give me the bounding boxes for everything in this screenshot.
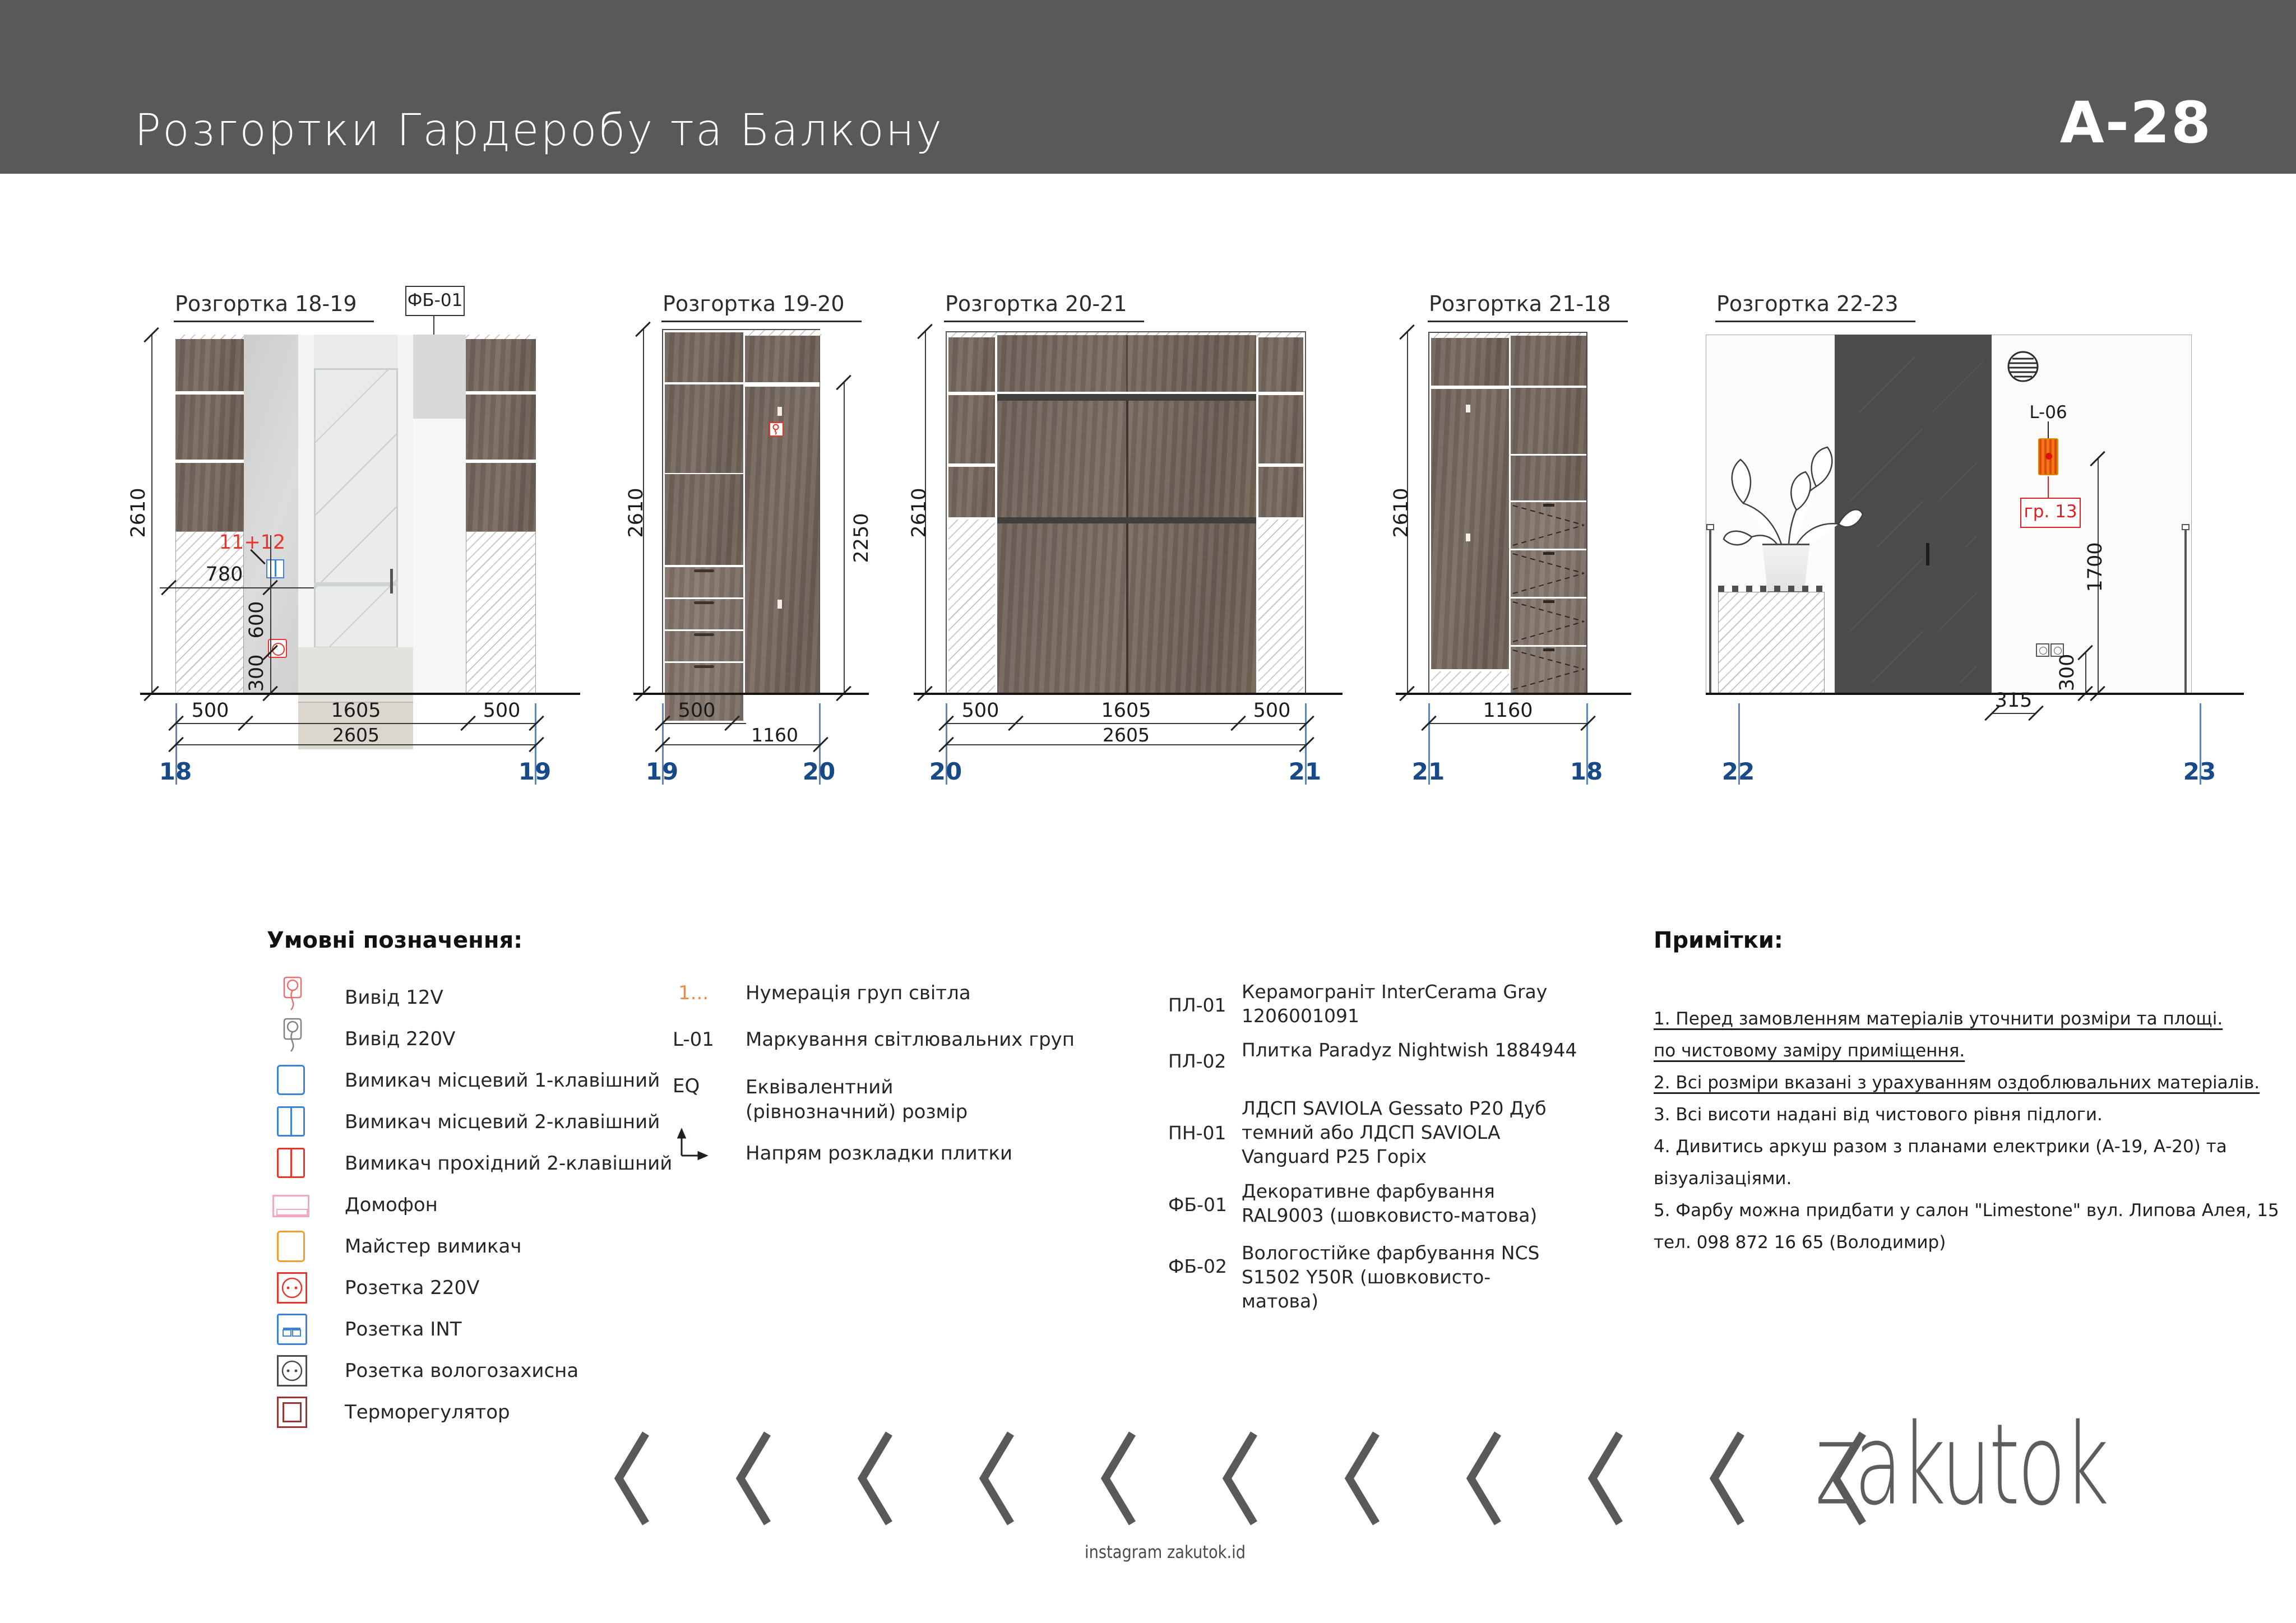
material-desc: Плитка Paradyz Nightwish 1884944 [1242,1038,1589,1062]
mirror-door [298,335,413,694]
wood-cabinet-door [1431,338,1509,386]
master-switch-icon [277,1231,305,1262]
lamp-leader [2048,421,2049,438]
wood-shelf-panel [175,463,244,531]
elevation-label: Розгортка 18-19 [174,291,374,322]
drawer-front [665,599,743,629]
wood-top-cabinet [997,335,1256,392]
wood-top-cabinet [1258,337,1303,392]
note-line: по чистовому заміру приміщення. [1654,1041,1965,1061]
drawer-front-x [1511,647,1586,693]
dim-total: 2605 [314,724,398,746]
wood-cabinet-door [745,336,820,382]
drawer-front-x [1511,599,1586,645]
material-code: ФБ-01 [1168,1193,1227,1217]
code-label: Нумерація груп світла [746,982,971,1004]
instagram-handle: instagram zakutok.id [1085,1542,1246,1562]
axis-marker: 18 [1564,758,1609,785]
elevation-label: Розгортка 20-21 [944,291,1144,322]
socket-int-icon [277,1314,307,1345]
material-code: ФБ-02 [1168,1254,1227,1278]
material-code: ПН-01 [1168,1121,1226,1145]
dim-total: 2605 [1084,724,1168,746]
light-group-tag: гр. 13 [2020,498,2081,528]
door-handle [390,569,393,593]
axis-marker: 19 [640,758,684,785]
drawer-x-icon [1511,502,1586,549]
drawer-front [665,663,743,693]
output-220v-icon [275,1018,311,1055]
wood-door-panel [665,474,743,565]
output-12v-icon [275,976,311,1013]
code-label: Напрям розкладки плитки [746,1142,1012,1165]
wood-shelf-panel [466,463,536,531]
planter-slats [1718,586,1825,592]
drawer-front [665,567,743,597]
chevron-icon [605,1430,659,1527]
note-line: 3. Всі висоти надані від чистового рівня… [1654,1105,2103,1125]
elevation-18-19: Розгортка 18-19 ФБ-01 2610 [129,280,583,801]
elevation-21-18: Розгортка 21-18 [1373,280,1637,801]
sliding-doors-upper [997,401,1256,517]
lamp-dot [2045,453,2052,460]
drawer-front-x [1511,550,1586,597]
dim-height: 2610 [625,474,647,552]
thermostat-inner [283,1402,302,1422]
intercom-slot [276,1209,308,1216]
note-line: 5. Фарбу можна придбати у салон "Limesto… [1654,1200,2279,1221]
drawer-handle [694,665,714,668]
dim-500: 500 [1244,699,1300,722]
wood-shelf-panel [175,339,244,391]
header-bar: Розгортки Гардеробу та Балкону A-28 [0,0,2296,174]
wood-top-cabinet [948,337,995,392]
drawing-sheet: Розгортки Гардеробу та Балкону A-28 Розг… [0,0,2296,1623]
slider-mid-rail [997,517,1256,523]
note-line: 4. Дивитись аркуш разом з планами електр… [1654,1137,2227,1157]
legend-item-label: Розетка вологозахисна [345,1360,578,1382]
intercom-icon [272,1195,309,1217]
thermostat-icon [277,1397,307,1428]
wood-section [1511,388,1586,454]
chevron-icon [849,1430,902,1527]
door-handle [1466,405,1470,412]
drawer-x-icon [1511,550,1586,597]
sliding-doors-lower [997,523,1256,693]
legend-item-label: Вимикач місцевий 1-клавішний [345,1069,660,1092]
axis-marker: 20 [797,758,841,785]
door-stile [398,335,413,694]
dim-row-1 [1428,723,1587,724]
dim-line-780 [160,587,314,588]
wall-lamp-icon [2038,438,2058,475]
switch-local-2-icon [277,1106,305,1137]
drawer-front-x [1511,502,1586,549]
dim-line-height [151,335,152,694]
switch-pass-2-icon [277,1148,305,1178]
wood-shelf-panel [948,395,995,463]
code-symbol: 1... [678,982,709,1004]
ground-line [914,693,1343,695]
legend-item-label: Домофон [345,1194,438,1216]
switch-local-1-icon [277,1065,305,1095]
wood-cabinet-door [665,332,743,382]
wardrobe-20-21 [946,331,1306,694]
dim-height: 2610 [1390,474,1413,552]
dim-500: 500 [182,699,238,722]
elevation-label: Розгортка 22-23 [1715,291,1915,322]
socket-waterproof-icon [277,1355,307,1386]
door-mid-rail [314,582,398,586]
dim-1605: 1605 [314,699,398,722]
dim-300: 300 [2056,639,2079,706]
group-leader [2048,476,2049,498]
hatched-plinth [1431,671,1509,693]
elevation-19-20: Розгортка 19-20 [617,280,886,801]
note-line: 1. Перед замовленням матеріалів уточнити… [1654,1009,2223,1029]
ground-line [1396,693,1631,695]
dim-500: 500 [669,699,725,722]
plant-pot [1759,544,1813,592]
legend-item-label: Розетка INT [345,1318,462,1341]
drawer-handle [694,601,714,604]
switch-divider [290,1108,292,1135]
railing-post [2184,530,2187,694]
hatched-wall [175,531,244,694]
door-handle [777,407,782,416]
vent-grille-icon [2007,350,2039,383]
mirror-glass [314,368,398,648]
lamp-tag: L-06 [2009,402,2087,423]
legend-item-label: Майстер вимикач [345,1235,521,1258]
dim-chain-line [270,535,271,694]
railing-post [1709,530,1711,694]
door-stile [298,335,314,694]
code-symbol: EQ [673,1075,700,1097]
wood-shelf-panel [1258,467,1303,517]
door-handle [777,600,782,609]
wood-shelf-panel [1258,395,1303,463]
material-code: ПЛ-02 [1168,1049,1226,1073]
axis-marker: 19 [512,758,557,785]
transom-glass [1843,357,1984,413]
dim-line-2250 [844,382,845,694]
gap-line [745,382,820,387]
drawer-handle [694,633,714,636]
socket-circle [2039,647,2047,655]
drawer-x-icon [1511,599,1586,645]
drawer-handle [694,569,714,572]
dim-height: 2610 [908,474,931,552]
wood-cabinet-door [1511,336,1586,386]
legend-item-label: Терморегулятор [345,1401,510,1423]
legend-item-label: Вимикач місцевий 2-клавішний [345,1111,660,1133]
chevron-icon [1579,1430,1633,1527]
ground-line [140,693,580,695]
chevron-icon [1336,1430,1390,1527]
switch-2key-icon [266,559,284,578]
chevron-icon [727,1430,781,1527]
material-desc: Вологостійке фарбування NCS S1502 Y50R (… [1242,1241,1556,1313]
elevation-label: Розгортка 21-18 [1428,291,1628,322]
door-split [1126,335,1128,392]
wardrobe-19-20 [662,329,820,694]
dim-2250: 2250 [850,499,873,577]
wood-tall-door [1431,389,1509,669]
tile-direction-icon [674,1126,710,1162]
door-split [1126,523,1128,693]
axis-marker: 21 [1283,758,1327,785]
logo-text: zakutok [1815,1400,2107,1531]
wood-shelf-panel [175,395,244,460]
hatched-wall [466,531,536,694]
railing-cap [1706,524,1714,530]
code-label: Еквівалентний (рівнозначний) розмір [746,1075,992,1124]
legend-item-label: Вивід 220V [345,1028,455,1050]
note-line: 2. Всі розміри вказані з урахуванням озд… [1654,1073,2260,1093]
wood-shelf-panel [948,467,995,517]
axis-marker: 18 [153,758,198,785]
wardrobe-21-18 [1428,332,1587,694]
door-split [1126,401,1128,517]
dim-line-300 [2085,652,2086,694]
ground-line [1706,693,2244,695]
material-tag: ФБ-01 [405,286,465,316]
dim-total: 1160 [1469,699,1547,722]
note-line: візуалізаціями. [1654,1168,1792,1189]
hatched-wall [1258,520,1303,693]
drawer-front [665,631,743,661]
legend-item-label: Вимикач прохідний 2-клавішний [345,1152,672,1175]
planter-box [1718,592,1825,694]
notes-title: Примітки: [1654,928,1783,953]
dim-row-1 [662,723,746,724]
door-handle [1926,543,1929,565]
chevron-icon [1092,1430,1146,1527]
dim-total: 1160 [735,724,814,746]
elevation-20-21: Розгортка 20-21 [897,280,1357,801]
material-desc: Керамограніт InterCerama Gray 1206001091 [1242,980,1578,1028]
dim-300: 300 [246,639,268,707]
sidelight-glass-upper [1939,429,1977,548]
dim-1605: 1605 [1084,699,1168,722]
dim-1700: 1700 [2084,528,2107,606]
chevron-icon [1457,1430,1511,1527]
wall-upper-band [413,335,466,419]
axis-marker: 23 [2177,758,2222,785]
dim-315: 315 [1980,689,2047,712]
chevron-icon [1701,1430,1755,1527]
material-desc: ЛДСП SAVIOLA Gessato P20 Дуб темний або … [1242,1096,1556,1168]
chevron-icon [1214,1430,1267,1527]
legend-item-label: Розетка 220V [345,1277,479,1299]
ground-line [633,693,869,695]
door-glass-lower [1850,559,1923,683]
code-symbol: L-01 [673,1028,714,1051]
output-wire [770,423,782,435]
painted-wall [413,419,466,694]
door-handle [1466,534,1470,541]
chevron-icon [970,1430,1024,1527]
wood-door-panel [665,384,743,473]
chevron-row [605,1430,1941,1529]
legend-item-label: Вивід 12V [345,986,443,1009]
wood-section [1511,456,1586,500]
socket-220v-icon [277,1272,307,1304]
material-code: ПЛ-01 [1168,993,1226,1017]
dim-line-315 [1992,713,2035,714]
slider-top-rail [997,394,1256,401]
dim-height: 2610 [127,474,150,552]
legend-title: Умовні позначення: [267,928,522,953]
dim-780: 780 [185,563,263,586]
switch-divider [290,1149,292,1176]
dim-500: 500 [952,699,1008,722]
sheet-number: A-28 [2060,90,2212,156]
top-hatch-strip [745,330,821,336]
page-title: Розгортки Гардеробу та Балкону [135,105,943,156]
axis-marker: 22 [1716,758,1761,785]
wood-shelf-panel [466,395,536,460]
axis-marker: 21 [1406,758,1451,785]
drawer-x-icon [1511,647,1586,693]
material-desc: Декоративне фарбування RAL9003 (шовковис… [1242,1179,1567,1227]
hatched-wall [948,520,995,693]
axis-marker: 20 [923,758,968,785]
switch-divider [275,560,276,577]
elevation-label: Розгортка 19-20 [661,291,862,322]
sidelight-glass-lower [1939,559,1977,683]
elevation-22-23: Розгортка 22-23 [1693,280,2259,801]
dim-500: 500 [474,699,530,722]
note-line: тел. 098 872 16 65 (Володимир) [1654,1232,1946,1253]
wood-shelf-panel [466,339,536,391]
socket-gang [2036,643,2049,657]
code-label: Маркування світлювальних груп [746,1028,1075,1051]
railing-cap [2182,524,2189,530]
output-12v-icon [769,422,784,437]
